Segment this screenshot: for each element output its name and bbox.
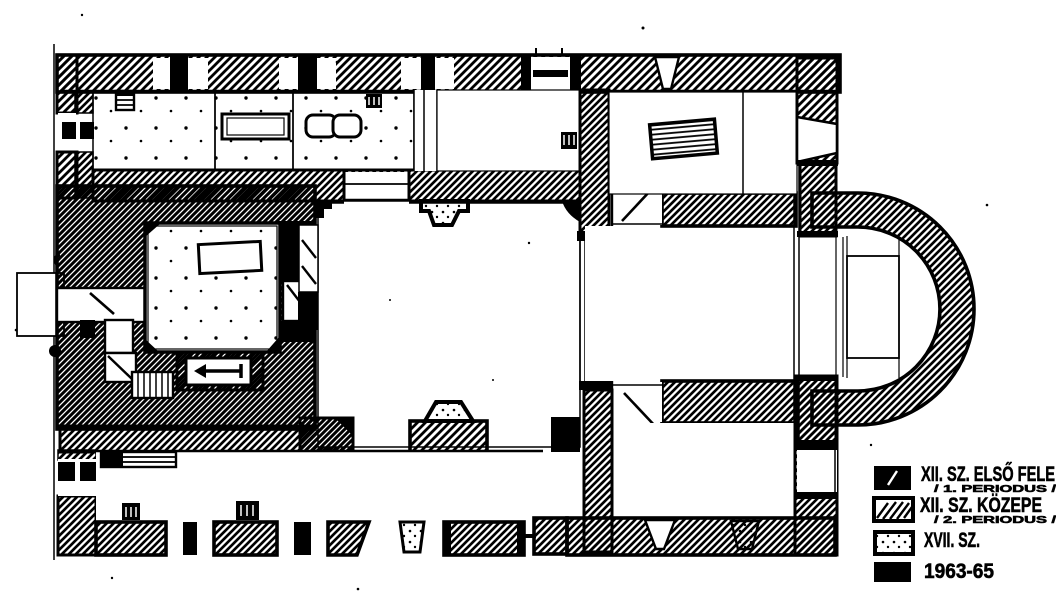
svg-text:/ 2. PERIODUS /: / 2. PERIODUS / (934, 515, 1056, 526)
svg-text:XII. SZ. KÖZEPE: XII. SZ. KÖZEPE (920, 494, 1042, 517)
svg-text:XVII. SZ.: XVII. SZ. (924, 529, 980, 552)
svg-text:XII. SZ. ELSŐ FELE: XII. SZ. ELSŐ FELE (921, 463, 1055, 486)
svg-text:1963-65: 1963-65 (924, 560, 994, 583)
